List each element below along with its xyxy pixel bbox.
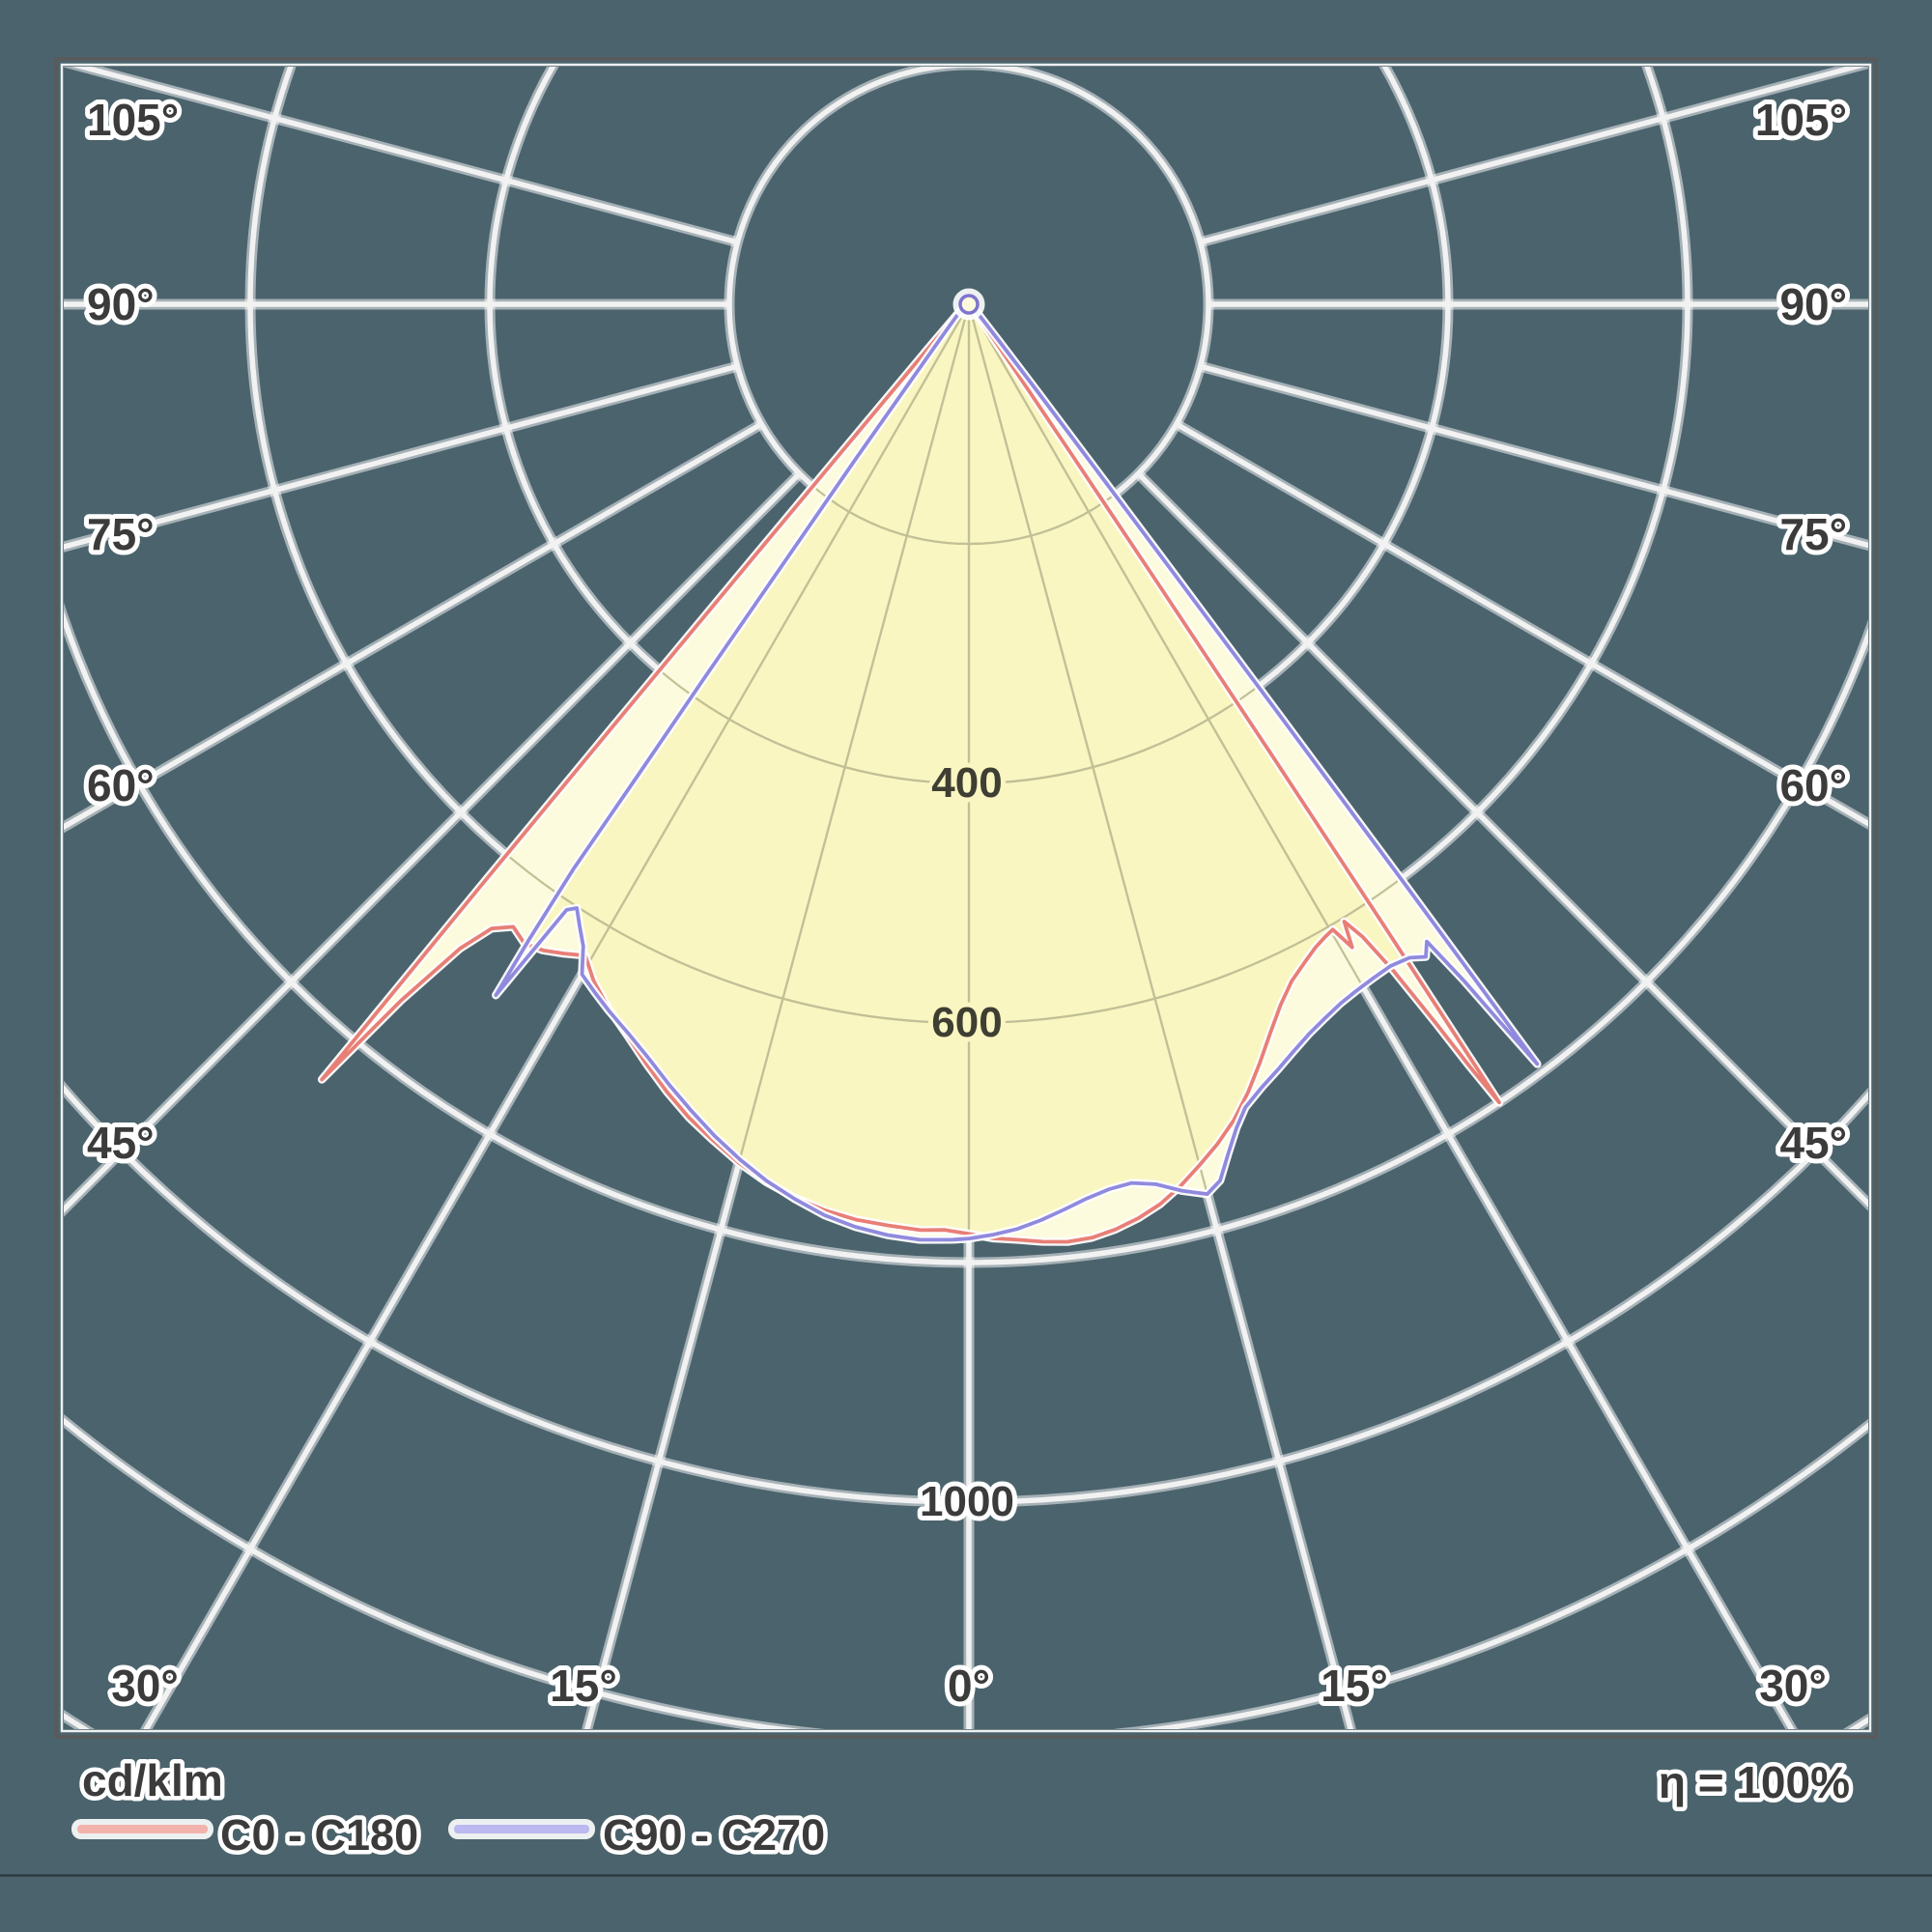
angle-label-bottom-0: 30° bbox=[111, 1661, 179, 1711]
legend-swatch-c90 bbox=[454, 1825, 589, 1833]
ring-label-1000: 1000 bbox=[920, 1478, 1014, 1525]
angle-label-bottom-1: 15° bbox=[550, 1661, 617, 1711]
angle-label-left-60: 60° bbox=[87, 760, 155, 810]
legend-label-c0: C0 - C180 bbox=[220, 1810, 418, 1860]
legend-label-c90: C90 - C270 bbox=[603, 1810, 825, 1860]
legend-swatch-c0 bbox=[77, 1825, 208, 1833]
angle-label-right-75: 75° bbox=[1779, 509, 1847, 559]
angle-label-left-45: 45° bbox=[87, 1118, 155, 1168]
photometric-diagram-page: 40040060060010001000 105°105°90°90°75°75… bbox=[0, 0, 1932, 1932]
angle-label-right-45: 45° bbox=[1779, 1118, 1847, 1168]
angle-label-left-90: 90° bbox=[87, 279, 155, 329]
apex-marker bbox=[960, 296, 978, 313]
angle-label-right-90: 90° bbox=[1779, 279, 1847, 329]
efficiency-label: η = 100% bbox=[1659, 1757, 1850, 1807]
angle-label-left-105: 105° bbox=[87, 95, 179, 145]
ring-label-600: 600 bbox=[931, 999, 1002, 1046]
angle-label-bottom-4: 30° bbox=[1759, 1661, 1827, 1711]
polar-chart: 40040060060010001000 105°105°90°90°75°75… bbox=[0, 0, 1932, 1932]
angle-label-left-75: 75° bbox=[87, 509, 155, 559]
apex-marker-group bbox=[956, 292, 981, 317]
ring-label-400: 400 bbox=[931, 759, 1002, 807]
angle-label-right-60: 60° bbox=[1779, 760, 1847, 810]
units-label: cd/klm bbox=[82, 1755, 223, 1805]
angle-label-right-105: 105° bbox=[1755, 95, 1847, 145]
angle-label-bottom-2: 0° bbox=[948, 1661, 990, 1711]
angle-label-bottom-3: 15° bbox=[1321, 1661, 1388, 1711]
